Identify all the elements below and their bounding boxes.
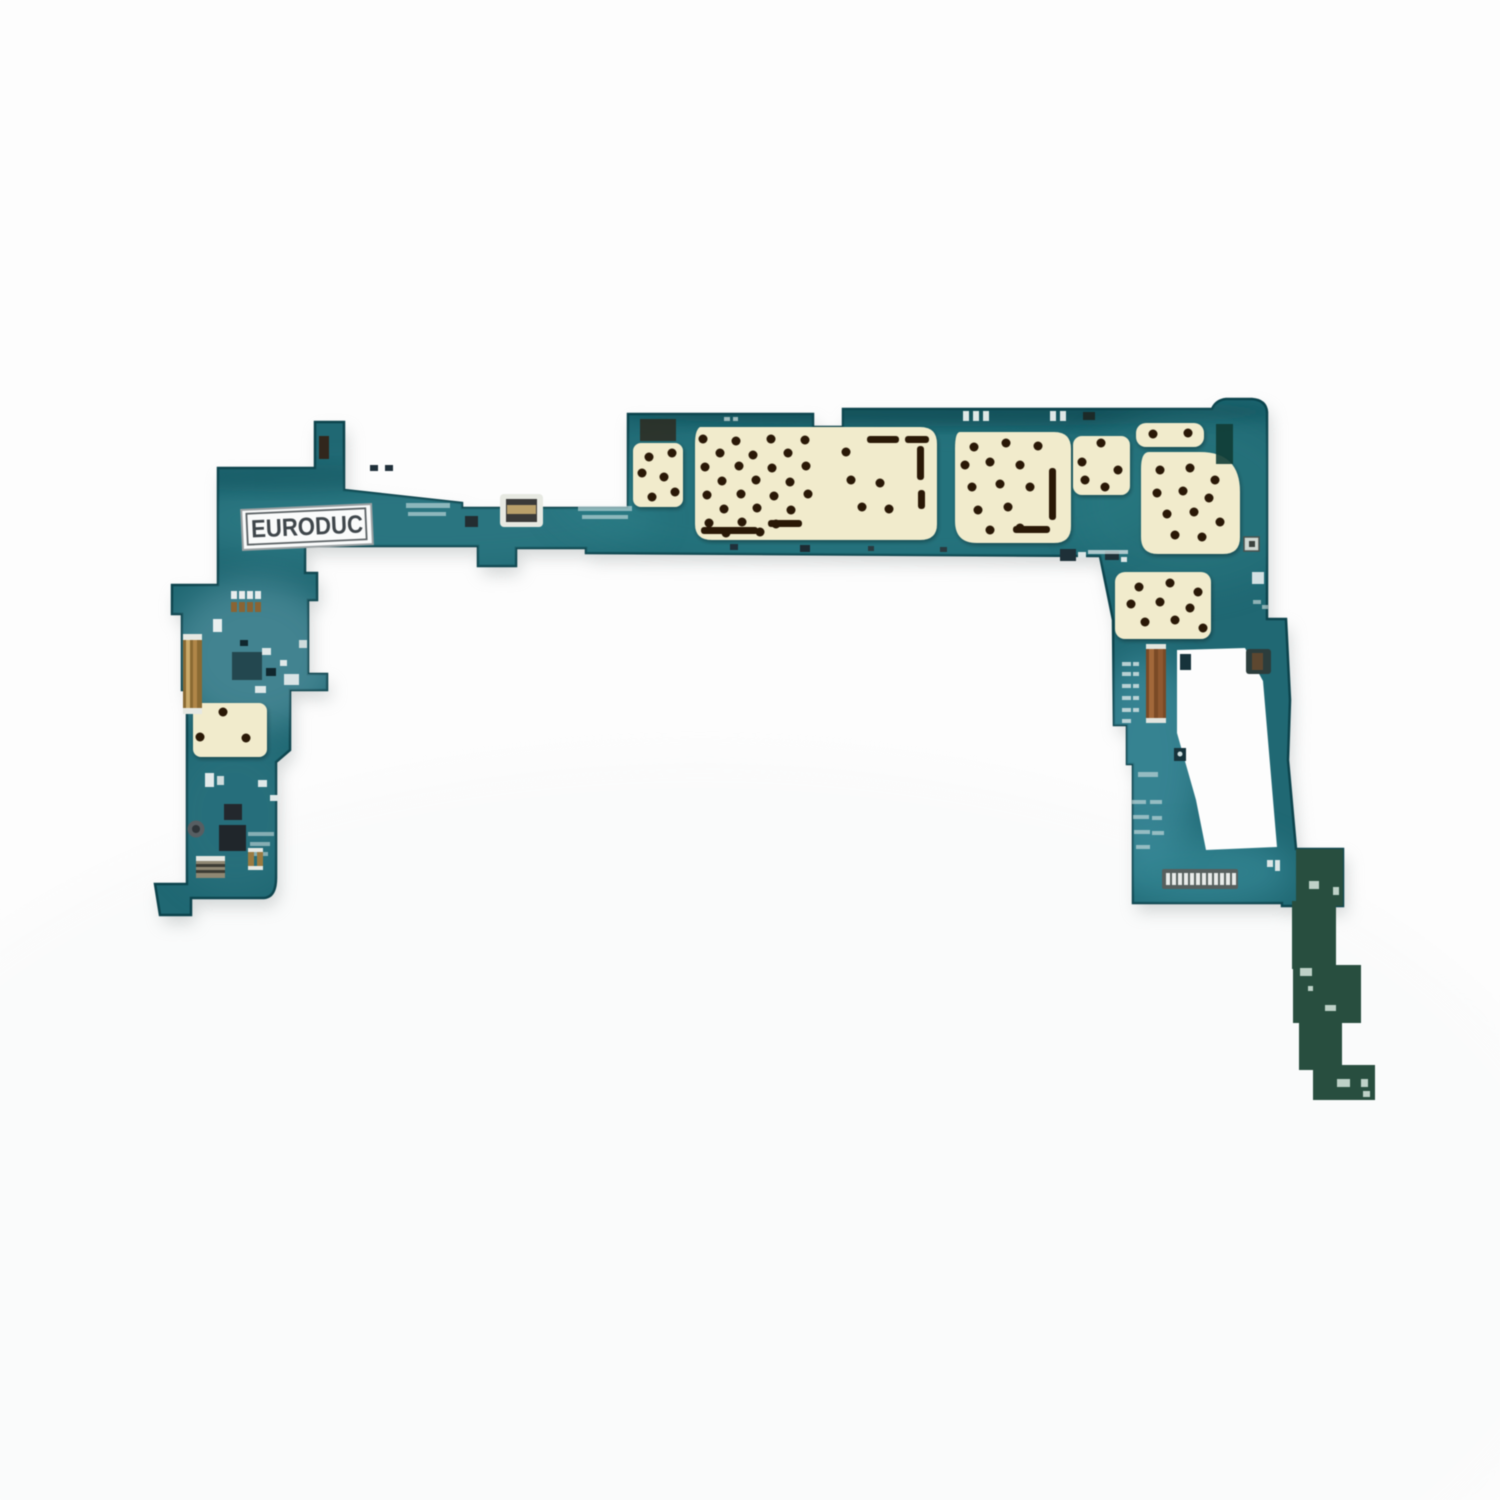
- svg-text:EURODUC: EURODUC: [250, 510, 363, 543]
